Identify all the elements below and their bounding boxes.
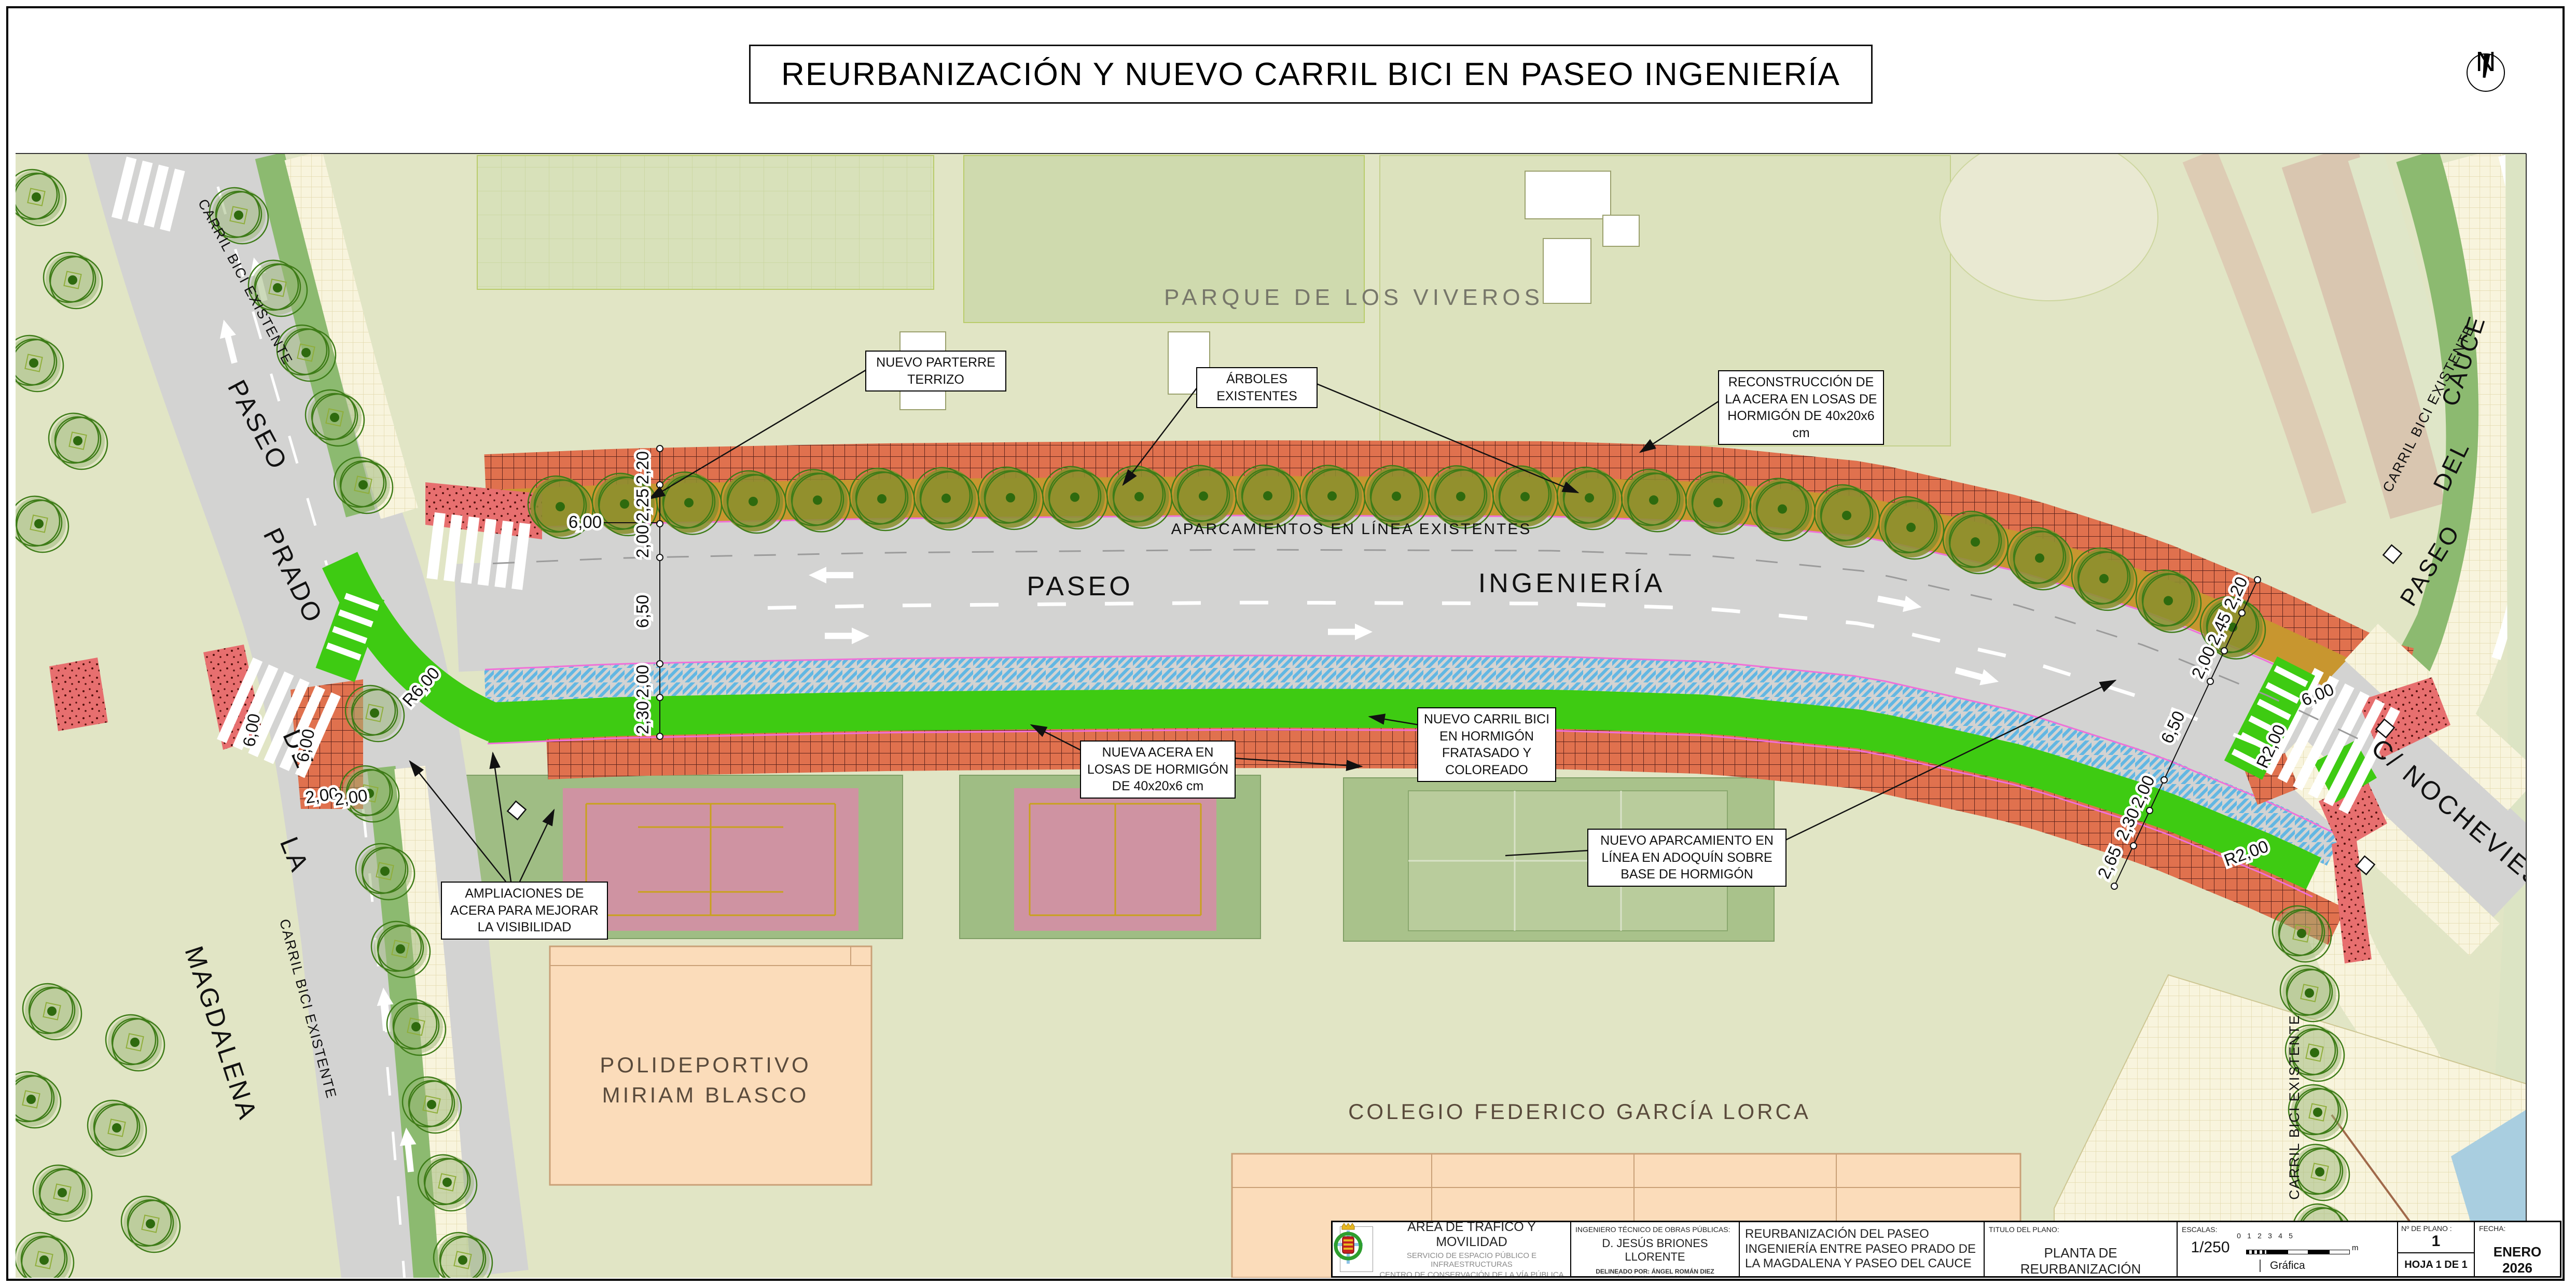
- scale-ticks: 01 23 45: [2239, 1232, 2301, 1240]
- title-block-org: ÁREA DE TRÁFICO Y MOVILIDAD SERVICIO DE …: [1333, 1222, 1571, 1276]
- org-sub2: CENTRO DE CONSERVACIÓN DE LA VÍA PÚBLICA: [1373, 1270, 1570, 1277]
- svg-text:6,00: 6,00: [569, 512, 602, 532]
- page-title: REURBANIZACIÓN Y NUEVO CARRIL BICI EN PA…: [781, 56, 1840, 93]
- title-block-engineer: INGENIERO TÉCNICO DE OBRAS PÚBLICAS: D. …: [1571, 1222, 1740, 1276]
- graphic-scale-bar: [2246, 1241, 2350, 1254]
- scale-graphic-label: Gráfica: [2260, 1260, 2393, 1272]
- annotation-arboles: ÁRBOLES EXISTENTES: [1196, 367, 1318, 408]
- drafted-by: DELINEADO POR: ÁNGEL ROMÁN DIEZ: [1575, 1268, 1735, 1275]
- label-paseo-w: PASEO: [1027, 571, 1133, 602]
- engineer-label: INGENIERO TÉCNICO DE OBRAS PÚBLICAS:: [1575, 1225, 1735, 1234]
- annotation-parterre: NUEVO PARTERRE TERRIZO: [865, 351, 1006, 392]
- drawing-sheet: PARQUE DE LOS VIVEROS PASEO INGENIERÍA A…: [0, 0, 2576, 1286]
- valladolid-coat-of-arms-icon: [1340, 1226, 1373, 1272]
- svg-text:2,25: 2,25: [633, 488, 652, 522]
- title-block-date: FECHA: ENERO 2026: [2475, 1222, 2560, 1276]
- drawing-title-box: REURBANIZACIÓN Y NUEVO CARRIL BICI EN PA…: [749, 45, 1873, 104]
- site-plan: PARQUE DE LOS VIVEROS PASEO INGENIERÍA A…: [0, 0, 2576, 1286]
- label-colegio: COLEGIO FEDERICO GARCÍA LORCA: [1348, 1099, 1811, 1124]
- project-title: REURBANIZACIÓN DEL PASEO INGENIERÍA ENTR…: [1745, 1227, 1978, 1271]
- plan-number: 1: [2401, 1233, 2471, 1250]
- label-polideportivo-1: POLIDEPORTIVO: [600, 1053, 811, 1077]
- title-block-project: REURBANIZACIÓN DEL PASEO INGENIERÍA ENTR…: [1740, 1222, 1985, 1276]
- annotation-aparcamiento: NUEVO APARCAMIENTO EN LÍNEA EN ADOQUÍN S…: [1587, 829, 1786, 887]
- north-arrow: N: [2460, 48, 2512, 125]
- svg-text:2,00: 2,00: [633, 665, 652, 698]
- label-carril-right-bottom: CARRIL BICI EXISTENTE: [2287, 1014, 2302, 1200]
- engineer-name: D. JESÚS BRIONES LLORENTE: [1575, 1237, 1735, 1264]
- title-block: ÁREA DE TRÁFICO Y MOVILIDAD SERVICIO DE …: [1331, 1221, 2561, 1278]
- tennis-court-2: [1014, 788, 1216, 931]
- sheet-number: HOJA 1 DE 1: [2398, 1253, 2474, 1276]
- svg-text:6,50: 6,50: [633, 595, 652, 628]
- plan-number-label: Nº DE PLANO :: [2401, 1224, 2471, 1233]
- svg-text:2,30: 2,30: [633, 701, 652, 734]
- scale-value: 1/250: [2182, 1239, 2239, 1256]
- label-aparcamientos: APARCAMIENTOS EN LÍNEA EXISTENTES: [1171, 521, 1532, 538]
- label-parque: PARQUE DE LOS VIVEROS: [1164, 285, 1544, 310]
- svg-text:2,00: 2,00: [633, 525, 652, 558]
- annotation-reconstruccion: RECONSTRUCCIÓN DE LA ACERA EN LOSAS DE H…: [1718, 370, 1884, 445]
- annotation-nueva-acera: NUEVA ACERA EN LOSAS DE HORMIGÓN DE 40x2…: [1080, 740, 1236, 799]
- org-sub1: SERVICIO DE ESPACIO PÚBLICO E INFRAESTRU…: [1373, 1251, 1570, 1269]
- title-block-number: Nº DE PLANO : 1 HOJA 1 DE 1: [2398, 1222, 2475, 1276]
- title-block-plan: TITULO DEL PLANO: PLANTA DE REURBANIZACI…: [1985, 1222, 2178, 1276]
- scale-unit: m: [2352, 1243, 2359, 1252]
- drafted-area: Área de Urbanismo y Vivienda: [1575, 1275, 1735, 1276]
- title-block-scales: ESCALAS: 1/250 01 23 45 m Gráfica: [2178, 1222, 2398, 1276]
- annotation-carril-bici: NUEVO CARRIL BICI EN HORMIGÓN FRATASADO …: [1417, 707, 1556, 782]
- svg-text:2,20: 2,20: [633, 451, 652, 484]
- date-value: ENERO 2026: [2479, 1244, 2556, 1276]
- date-label: FECHA:: [2479, 1224, 2556, 1233]
- label-polideportivo-2: MIRIAM BLASCO: [602, 1083, 809, 1107]
- org-title: ÁREA DE TRÁFICO Y MOVILIDAD: [1373, 1222, 1570, 1250]
- annotation-ampliaciones: AMPLIACIONES DE ACERA PARA MEJORAR LA VI…: [441, 882, 608, 940]
- plan-title: PLANTA DE REURBANIZACIÓN: [1989, 1245, 2172, 1276]
- plan-title-label: TITULO DEL PLANO:: [1989, 1225, 2172, 1234]
- north-compass-icon: [2460, 48, 2512, 97]
- label-ingenieria: INGENIERÍA: [1478, 568, 1666, 598]
